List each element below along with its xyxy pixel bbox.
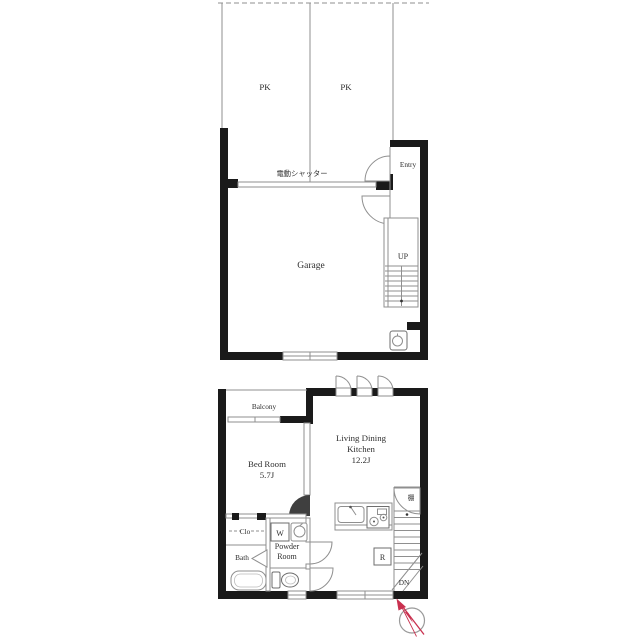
entry-door-arc [365,156,390,181]
toilet [272,572,299,588]
closet-label: Clo [240,527,251,536]
electric-shutter-symbol [238,182,376,187]
ldk-bottom-window [337,591,393,599]
garage-window [283,352,337,360]
parking-area-outline [218,3,429,183]
ldk-top-windows [336,376,393,396]
up-label: UP [398,252,409,261]
north-arrow-compass [397,599,425,637]
second-floor-plan: Balcony Bed Room 5.7J Living Dining Kitc… [218,376,428,599]
shutter-label: 電動シャッター [276,169,327,178]
floor-plan-drawing: PK PK 電動シャッター Entry Garage [0,0,640,639]
ldk-label-line2: Kitchen [347,444,375,454]
ldk-label-line1: Living Dining [336,433,387,443]
dn-label: DN [399,578,410,587]
kitchen-counter [335,503,392,530]
wash-basin [291,523,307,541]
powder-room-label-line1: Powder [275,542,300,551]
powder-room-door-arc [310,542,332,564]
staircase-down-treads [394,518,420,570]
staircase-up: UP [384,218,418,307]
refrigerator-label: R [380,553,386,562]
powder-room-label-line2: Room [277,552,297,561]
kitchen-stove [367,507,389,529]
parking-right-label: PK [340,82,352,92]
bedroom-size-label: 5.7J [260,470,275,480]
parking-left-label: PK [259,82,271,92]
garage-label: Garage [297,261,324,271]
water-heater-fixture [390,331,407,350]
washer-label: W [276,529,284,538]
kitchen-sink [338,507,364,523]
bathroom: Bath [231,550,267,590]
first-floor-plan: PK PK 電動シャッター Entry Garage [218,3,429,360]
bedroom-door-arc [289,495,310,516]
washer-machine: W [271,523,289,541]
entry-label: Entry [400,160,417,169]
bath-label: Bath [235,553,249,562]
refrigerator: R [374,548,391,565]
bedroom-ldk-divider-wall [304,423,310,495]
balcony-label: Balcony [252,402,277,411]
bath-folding-door [252,550,267,567]
hall-door-arc [310,568,333,591]
powder-room-window [288,591,306,599]
floor-plan-page: PK PK 電動シャッター Entry Garage [0,0,640,639]
shelf-label: 棚 [408,493,415,502]
ldk-size-label: 12.2J [352,455,371,465]
staircase-down: 棚 DN [392,487,423,591]
closet: Clo [229,527,265,536]
bedroom-label: Bed Room [248,459,286,469]
